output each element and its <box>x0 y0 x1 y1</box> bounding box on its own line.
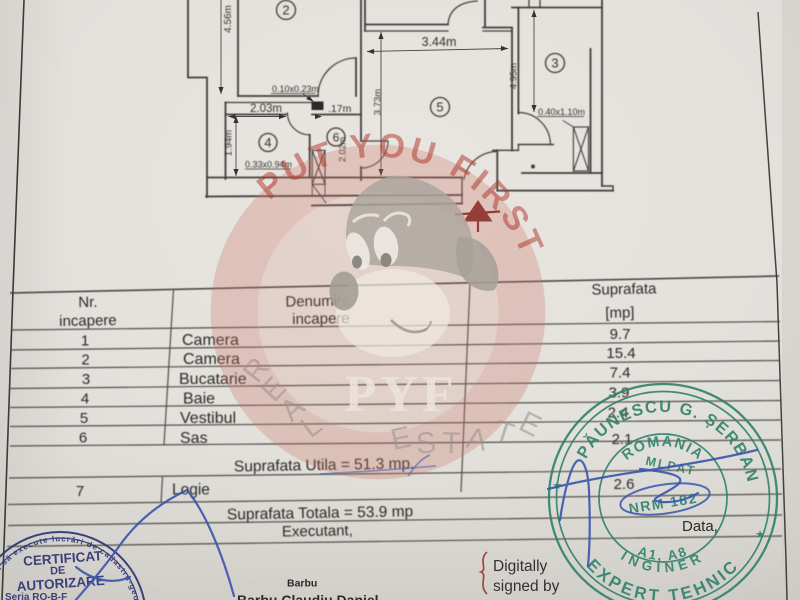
svg-text:1: 1 <box>81 333 89 350</box>
svg-text:1.94m: 1.94m <box>224 130 235 156</box>
svg-text:7: 7 <box>76 483 84 500</box>
svg-text:2.6: 2.6 <box>614 476 635 493</box>
svg-text:3: 3 <box>82 371 90 388</box>
svg-text:Sas: Sas <box>180 430 208 447</box>
svg-text:9.7: 9.7 <box>610 326 631 343</box>
svg-text:[mp]: [mp] <box>605 304 635 322</box>
svg-text:Vestibul: Vestibul <box>180 410 236 427</box>
svg-text:5: 5 <box>436 100 443 115</box>
svg-text:S: S <box>415 426 438 461</box>
svg-text:Suprafata: Suprafata <box>591 280 657 298</box>
svg-text:4.56m: 4.56m <box>223 5 234 33</box>
svg-text:15.4: 15.4 <box>606 345 635 362</box>
svg-text:Barbu Claudiu Daniel: Barbu Claudiu Daniel <box>237 592 379 600</box>
svg-text:Seria RO-B-F: Seria RO-B-F <box>5 592 67 600</box>
svg-text:T: T <box>442 427 461 461</box>
svg-text:7.4: 7.4 <box>610 365 631 382</box>
svg-text:Baie: Baie <box>183 391 215 408</box>
svg-text:signed by: signed by <box>493 578 560 595</box>
svg-text:Executant,: Executant, <box>282 522 353 540</box>
svg-text:5: 5 <box>80 410 88 427</box>
svg-text:4.95m: 4.95m <box>509 63 520 89</box>
svg-text:★: ★ <box>755 529 765 541</box>
svg-text:2: 2 <box>282 3 289 18</box>
svg-text:0.40x1.10m: 0.40x1.10m <box>538 107 585 117</box>
svg-text:3.44m: 3.44m <box>422 35 457 49</box>
svg-text:.17m: .17m <box>328 103 352 115</box>
svg-text:Digitally: Digitally <box>493 558 548 575</box>
svg-text:4: 4 <box>81 391 89 408</box>
svg-text:3.73m: 3.73m <box>373 89 384 115</box>
svg-text:incapere: incapere <box>59 312 117 330</box>
svg-text:3: 3 <box>551 56 558 71</box>
svg-text:6: 6 <box>79 430 87 447</box>
svg-text:PYF: PYF <box>344 366 457 423</box>
svg-text:4: 4 <box>264 135 271 150</box>
svg-text:2: 2 <box>81 352 89 369</box>
svg-text:Data,: Data, <box>682 518 718 535</box>
svg-text:0.10x0.23m: 0.10x0.23m <box>272 84 319 94</box>
svg-text:Barbu: Barbu <box>287 578 317 590</box>
svg-text:Suprafata Totala = 53.9 mp: Suprafata Totala = 53.9 mp <box>227 503 414 523</box>
svg-text:2.03m: 2.03m <box>250 103 282 115</box>
svg-text:Nr.: Nr. <box>78 294 97 311</box>
